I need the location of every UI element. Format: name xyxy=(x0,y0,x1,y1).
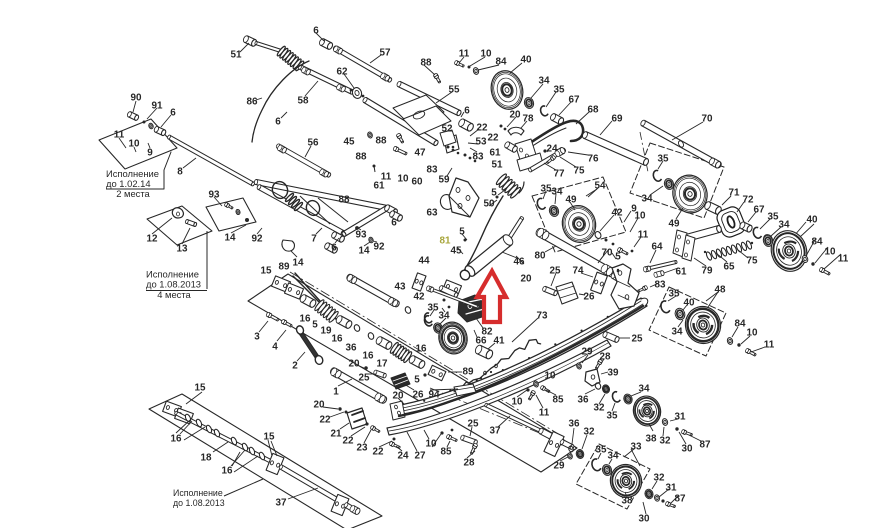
svg-text:87: 87 xyxy=(675,494,686,505)
svg-text:4 места: 4 места xyxy=(157,289,191,300)
svg-text:78: 78 xyxy=(523,114,534,125)
svg-text:15: 15 xyxy=(261,266,272,277)
svg-text:31: 31 xyxy=(675,412,686,423)
svg-text:16: 16 xyxy=(300,314,311,325)
svg-text:1: 1 xyxy=(333,387,339,398)
svg-text:25: 25 xyxy=(468,419,479,430)
svg-text:22: 22 xyxy=(488,133,499,144)
svg-text:10: 10 xyxy=(545,371,556,382)
svg-text:92: 92 xyxy=(374,242,385,253)
svg-text:50: 50 xyxy=(484,199,495,210)
svg-text:9: 9 xyxy=(147,148,153,159)
svg-text:45: 45 xyxy=(451,246,462,257)
svg-text:18: 18 xyxy=(201,453,212,464)
svg-text:79: 79 xyxy=(702,266,713,277)
svg-text:5: 5 xyxy=(459,227,465,238)
svg-text:22: 22 xyxy=(320,415,331,426)
svg-text:5: 5 xyxy=(615,252,621,263)
svg-text:8: 8 xyxy=(177,167,183,178)
svg-text:91: 91 xyxy=(152,101,163,112)
svg-text:35: 35 xyxy=(768,212,779,223)
svg-text:52: 52 xyxy=(442,124,453,135)
svg-text:77: 77 xyxy=(554,169,565,180)
svg-text:36: 36 xyxy=(569,419,580,430)
svg-text:32: 32 xyxy=(594,403,605,414)
svg-text:28: 28 xyxy=(600,352,611,363)
svg-text:92: 92 xyxy=(252,234,263,245)
svg-text:10: 10 xyxy=(825,247,836,258)
svg-text:38: 38 xyxy=(622,496,633,507)
svg-text:67: 67 xyxy=(754,205,765,216)
svg-text:35: 35 xyxy=(658,154,669,165)
svg-text:51: 51 xyxy=(231,50,242,61)
svg-text:20: 20 xyxy=(393,391,404,402)
svg-text:6: 6 xyxy=(331,243,337,254)
svg-text:88: 88 xyxy=(356,152,367,163)
svg-text:24: 24 xyxy=(547,144,558,155)
svg-text:11: 11 xyxy=(459,49,470,60)
svg-text:56: 56 xyxy=(308,138,319,149)
svg-text:74: 74 xyxy=(573,266,584,277)
svg-text:93: 93 xyxy=(209,190,220,201)
svg-text:35: 35 xyxy=(596,445,607,456)
svg-text:61: 61 xyxy=(490,148,501,159)
svg-text:61: 61 xyxy=(676,267,687,278)
svg-text:84: 84 xyxy=(735,319,746,330)
svg-text:75: 75 xyxy=(747,256,758,267)
svg-text:29: 29 xyxy=(582,347,593,358)
svg-text:6: 6 xyxy=(275,117,281,128)
svg-text:22: 22 xyxy=(343,436,354,447)
svg-text:89: 89 xyxy=(463,367,474,378)
svg-text:36: 36 xyxy=(346,343,357,354)
svg-text:72: 72 xyxy=(743,195,754,206)
svg-text:34: 34 xyxy=(779,220,790,231)
svg-text:61: 61 xyxy=(374,181,385,192)
svg-text:28: 28 xyxy=(464,458,475,469)
svg-text:59: 59 xyxy=(439,175,450,186)
svg-text:20: 20 xyxy=(510,110,521,121)
svg-text:34: 34 xyxy=(539,76,550,87)
svg-text:11: 11 xyxy=(838,254,849,265)
svg-text:49: 49 xyxy=(669,219,680,230)
svg-text:34: 34 xyxy=(642,194,653,205)
svg-text:30: 30 xyxy=(682,444,693,455)
svg-text:11: 11 xyxy=(638,230,649,241)
svg-text:10: 10 xyxy=(747,328,758,339)
svg-text:35: 35 xyxy=(669,289,680,300)
svg-text:26: 26 xyxy=(584,292,595,303)
svg-text:23: 23 xyxy=(357,443,368,454)
svg-text:34: 34 xyxy=(672,327,683,338)
svg-text:40: 40 xyxy=(807,215,818,226)
svg-text:45: 45 xyxy=(344,137,355,148)
svg-text:43: 43 xyxy=(395,282,406,293)
svg-text:35: 35 xyxy=(607,411,618,422)
svg-text:10: 10 xyxy=(481,49,492,60)
svg-text:16: 16 xyxy=(171,434,182,445)
svg-text:30: 30 xyxy=(639,514,650,525)
svg-text:22: 22 xyxy=(477,123,488,134)
svg-text:73: 73 xyxy=(537,311,548,322)
svg-text:34: 34 xyxy=(439,311,450,322)
svg-text:10: 10 xyxy=(426,439,437,450)
svg-text:85: 85 xyxy=(441,447,452,458)
svg-text:5: 5 xyxy=(312,320,318,331)
svg-text:84: 84 xyxy=(496,57,507,68)
svg-text:31: 31 xyxy=(666,483,677,494)
svg-text:17: 17 xyxy=(377,359,388,370)
svg-text:12: 12 xyxy=(147,234,158,245)
svg-text:32: 32 xyxy=(660,436,671,447)
svg-text:89: 89 xyxy=(279,262,290,273)
svg-text:36: 36 xyxy=(578,395,589,406)
svg-text:85: 85 xyxy=(553,395,564,406)
svg-text:24: 24 xyxy=(398,451,409,462)
svg-text:2: 2 xyxy=(292,361,298,372)
svg-text:10: 10 xyxy=(512,397,523,408)
svg-text:37: 37 xyxy=(490,426,501,437)
svg-text:70: 70 xyxy=(702,114,713,125)
svg-text:7: 7 xyxy=(311,234,317,245)
svg-text:35: 35 xyxy=(541,184,552,195)
svg-text:25: 25 xyxy=(632,334,643,345)
svg-text:94: 94 xyxy=(429,390,440,401)
svg-text:67: 67 xyxy=(569,95,580,106)
svg-text:27: 27 xyxy=(415,451,426,462)
svg-text:84: 84 xyxy=(812,237,823,248)
svg-text:83: 83 xyxy=(473,152,484,163)
svg-text:87: 87 xyxy=(700,440,711,451)
svg-text:15: 15 xyxy=(195,383,206,394)
svg-text:32: 32 xyxy=(654,473,665,484)
svg-text:15: 15 xyxy=(264,432,275,443)
svg-text:40: 40 xyxy=(684,298,695,309)
svg-text:19: 19 xyxy=(321,326,332,337)
svg-text:4: 4 xyxy=(272,342,278,353)
svg-text:90: 90 xyxy=(131,93,142,104)
svg-text:25: 25 xyxy=(550,266,561,277)
svg-text:58: 58 xyxy=(298,96,309,107)
svg-text:76: 76 xyxy=(588,154,599,165)
svg-text:46: 46 xyxy=(514,257,525,268)
svg-text:3: 3 xyxy=(254,332,260,343)
svg-text:42: 42 xyxy=(414,292,425,303)
svg-text:35: 35 xyxy=(428,303,439,314)
svg-text:10: 10 xyxy=(398,174,409,185)
svg-text:до 1.08.2013: до 1.08.2013 xyxy=(173,498,225,508)
svg-text:47: 47 xyxy=(415,148,426,159)
svg-text:68: 68 xyxy=(588,105,599,116)
svg-text:14: 14 xyxy=(225,233,236,244)
svg-text:11: 11 xyxy=(539,408,550,419)
svg-text:14: 14 xyxy=(359,246,370,257)
svg-text:20: 20 xyxy=(521,274,532,285)
svg-text:16: 16 xyxy=(416,344,427,355)
svg-text:5: 5 xyxy=(414,375,420,386)
svg-text:51: 51 xyxy=(492,160,503,171)
svg-text:80: 80 xyxy=(535,251,546,262)
svg-text:41: 41 xyxy=(494,336,505,347)
svg-text:88: 88 xyxy=(339,195,350,206)
svg-text:65: 65 xyxy=(724,262,735,273)
svg-text:49: 49 xyxy=(566,195,577,206)
svg-text:16: 16 xyxy=(222,466,233,477)
svg-text:48: 48 xyxy=(715,285,726,296)
svg-text:93: 93 xyxy=(356,230,367,241)
svg-text:66: 66 xyxy=(476,336,487,347)
svg-text:14: 14 xyxy=(293,258,304,269)
svg-text:63: 63 xyxy=(427,208,438,219)
svg-text:20: 20 xyxy=(314,400,325,411)
svg-text:11: 11 xyxy=(114,130,125,141)
svg-text:37: 37 xyxy=(276,498,287,509)
svg-text:16: 16 xyxy=(332,334,343,345)
svg-text:34: 34 xyxy=(608,451,619,462)
svg-text:25: 25 xyxy=(359,373,370,384)
svg-text:22: 22 xyxy=(373,447,384,458)
svg-text:75: 75 xyxy=(574,166,585,177)
svg-text:10: 10 xyxy=(635,211,646,222)
svg-text:Исполнение: Исполнение xyxy=(173,488,223,498)
svg-text:11: 11 xyxy=(764,340,775,351)
svg-text:2 места: 2 места xyxy=(116,188,150,199)
svg-text:5: 5 xyxy=(491,188,497,199)
svg-text:42: 42 xyxy=(612,208,623,219)
svg-text:57: 57 xyxy=(380,48,391,59)
svg-text:83: 83 xyxy=(655,280,666,291)
svg-text:13: 13 xyxy=(177,244,188,255)
svg-text:55: 55 xyxy=(449,85,460,96)
svg-text:69: 69 xyxy=(612,114,623,125)
svg-text:39: 39 xyxy=(608,368,619,379)
svg-text:71: 71 xyxy=(729,188,740,199)
svg-text:6: 6 xyxy=(464,106,470,117)
svg-text:20: 20 xyxy=(349,359,360,370)
svg-text:53: 53 xyxy=(476,137,487,148)
svg-text:16: 16 xyxy=(363,351,374,362)
svg-text:29: 29 xyxy=(554,461,565,472)
svg-text:6: 6 xyxy=(170,108,176,119)
svg-text:83: 83 xyxy=(427,165,438,176)
svg-text:44: 44 xyxy=(419,256,430,267)
svg-text:32: 32 xyxy=(584,427,595,438)
svg-text:88: 88 xyxy=(421,58,432,69)
svg-text:21: 21 xyxy=(331,429,342,440)
svg-text:88: 88 xyxy=(376,136,387,147)
svg-text:35: 35 xyxy=(554,85,565,96)
svg-text:40: 40 xyxy=(521,55,532,66)
svg-text:62: 62 xyxy=(337,67,348,78)
svg-text:64: 64 xyxy=(652,242,663,253)
svg-text:6: 6 xyxy=(313,26,319,37)
svg-text:26: 26 xyxy=(413,390,424,401)
svg-text:81: 81 xyxy=(440,236,451,247)
svg-text:60: 60 xyxy=(412,177,423,188)
svg-text:10: 10 xyxy=(129,139,140,150)
svg-text:38: 38 xyxy=(646,434,657,445)
svg-text:34: 34 xyxy=(639,384,650,395)
svg-text:6: 6 xyxy=(391,218,397,229)
svg-text:86: 86 xyxy=(247,97,258,108)
svg-text:70: 70 xyxy=(602,248,613,259)
svg-text:34: 34 xyxy=(552,187,563,198)
